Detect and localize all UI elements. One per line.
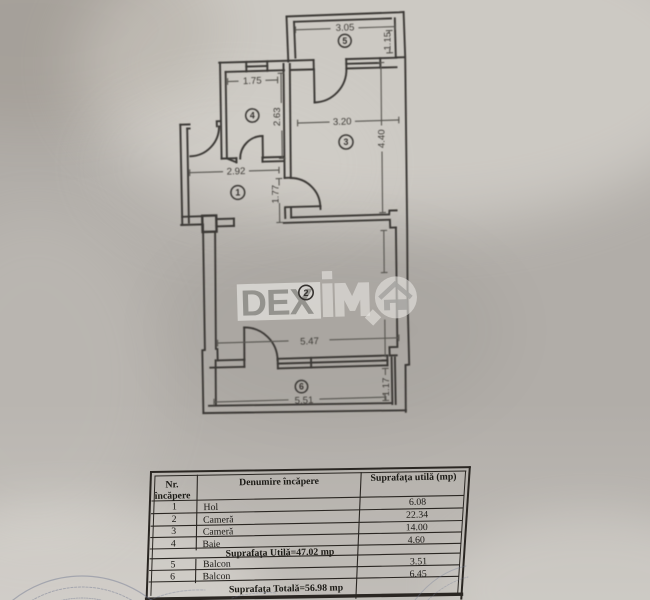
svg-text:2: 2 xyxy=(172,514,177,525)
svg-text:Suprafaţa utilă (mp): Suprafaţa utilă (mp) xyxy=(370,471,456,483)
svg-text:6.08: 6.08 xyxy=(409,497,426,508)
svg-text:Balcon: Balcon xyxy=(203,571,231,582)
svg-text:3.05: 3.05 xyxy=(336,22,355,34)
svg-text:1.77: 1.77 xyxy=(271,185,282,204)
svg-text:Suprafaţa Utilă=47.02 mp: Suprafaţa Utilă=47.02 mp xyxy=(226,547,335,560)
svg-text:Baie: Baie xyxy=(202,539,221,550)
svg-text:1.15: 1.15 xyxy=(383,32,394,51)
svg-text:5: 5 xyxy=(342,36,347,46)
svg-text:2.63: 2.63 xyxy=(272,107,283,126)
svg-text:5.47: 5.47 xyxy=(300,336,319,348)
svg-text:3.20: 3.20 xyxy=(333,116,352,128)
svg-text:14.00: 14.00 xyxy=(406,522,428,533)
svg-text:22.34: 22.34 xyxy=(406,509,428,520)
svg-text:încăpere: încăpere xyxy=(154,490,192,502)
svg-text:4: 4 xyxy=(250,111,255,121)
svg-text:Nr.: Nr. xyxy=(165,479,179,490)
svg-text:Denumire încăpere: Denumire încăpere xyxy=(239,476,320,488)
svg-text:6: 6 xyxy=(170,572,175,583)
svg-text:2.92: 2.92 xyxy=(227,166,246,178)
svg-text:4: 4 xyxy=(171,539,176,550)
svg-text:5.51: 5.51 xyxy=(295,395,314,407)
svg-text:Suprafaţa Totală=56.98 mp: Suprafaţa Totală=56.98 mp xyxy=(229,582,344,595)
svg-text:Cameră: Cameră xyxy=(203,514,234,526)
svg-text:1.17: 1.17 xyxy=(381,378,392,397)
svg-text:3: 3 xyxy=(171,526,176,537)
svg-text:1: 1 xyxy=(172,501,177,512)
svg-text:4.60: 4.60 xyxy=(408,535,425,546)
svg-text:2: 2 xyxy=(303,288,308,298)
svg-text:Hol: Hol xyxy=(203,502,218,513)
svg-text:Balcon: Balcon xyxy=(203,559,231,570)
svg-text:Cameră: Cameră xyxy=(203,526,234,538)
svg-text:3: 3 xyxy=(344,137,349,147)
svg-text:5: 5 xyxy=(171,559,176,570)
svg-text:3.51: 3.51 xyxy=(410,556,427,567)
svg-text:6.45: 6.45 xyxy=(409,569,426,580)
svg-text:1: 1 xyxy=(235,188,240,198)
svg-text:4.40: 4.40 xyxy=(376,129,387,148)
svg-text:1.75: 1.75 xyxy=(243,76,262,88)
svg-text:6: 6 xyxy=(299,382,304,392)
